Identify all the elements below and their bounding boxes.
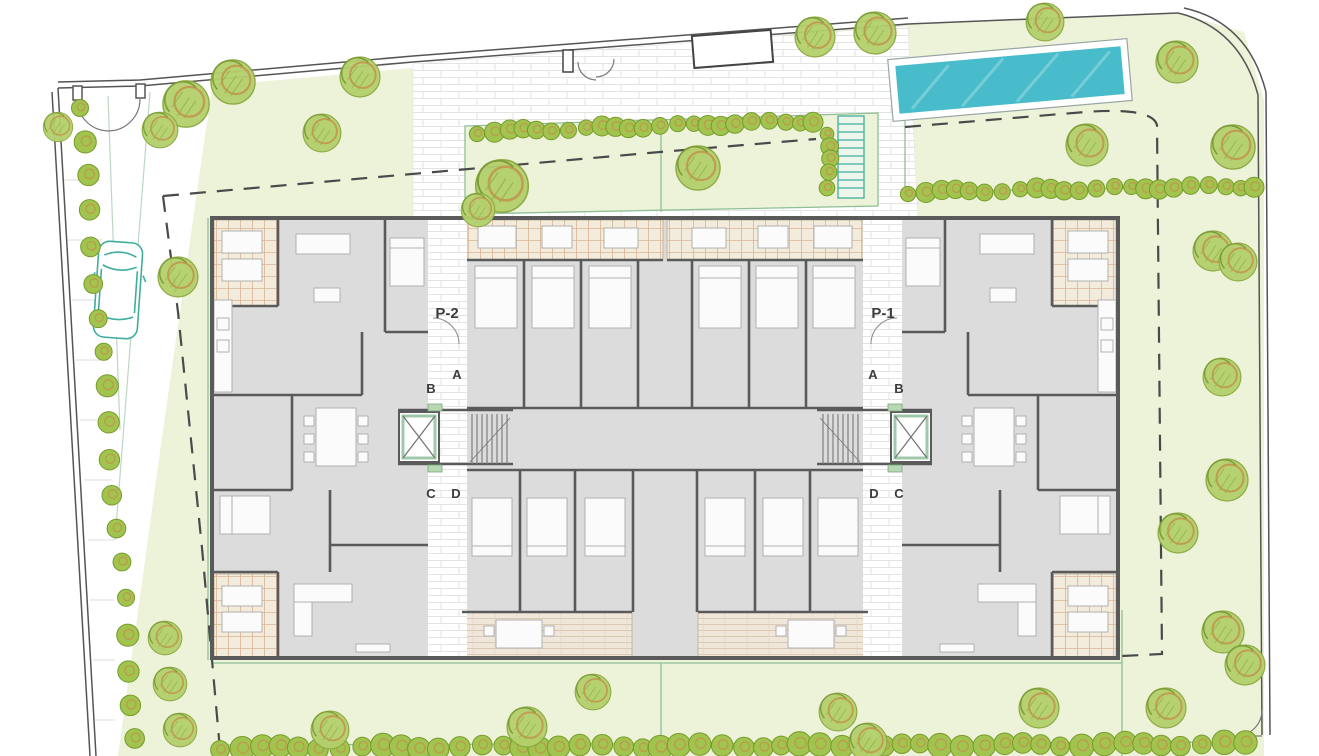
tree [575, 674, 611, 710]
hedge-bush [808, 733, 831, 756]
hedge-bush [95, 343, 112, 360]
hedge-bush [614, 737, 634, 756]
unit-letter-d-left: D [451, 486, 460, 501]
hedge-bush [1234, 731, 1257, 754]
site-plan-canvas: P-2 P-1 A B C D A B D C [0, 0, 1319, 756]
hedge-bush [118, 589, 135, 606]
hedge-bush [79, 200, 99, 220]
hedge-bush [78, 164, 99, 185]
hedge-bush [72, 100, 89, 117]
tree [1026, 3, 1064, 41]
tree [1225, 645, 1265, 685]
hedge-bush [711, 735, 733, 756]
hedge-bush [1164, 179, 1182, 197]
hedge-bush [1192, 735, 1211, 754]
hedge-bush [734, 737, 755, 756]
hedge-bush [1070, 734, 1094, 756]
hedge-bush [1212, 730, 1236, 754]
hedge-bush [113, 553, 131, 571]
hedge-bush [1088, 180, 1105, 197]
hedge-bush [569, 734, 591, 756]
tree [1211, 125, 1255, 169]
tree [461, 193, 495, 227]
hedge-bush [469, 126, 484, 141]
tree [1219, 243, 1257, 281]
hedge-bush [743, 113, 761, 131]
unit-letter-a-right: A [868, 367, 878, 382]
tree [849, 723, 887, 756]
hedge-bush [102, 485, 122, 505]
tree [676, 146, 720, 190]
hedge-bush [450, 737, 471, 756]
unit-letter-b-right: B [894, 381, 903, 396]
hedge-bush [1107, 179, 1123, 195]
hedge-bush [950, 735, 973, 756]
hedge-bush [81, 237, 101, 257]
apartment-building [212, 218, 1118, 660]
site-plan: P-2 P-1 A B C D A B D C [0, 0, 1319, 756]
hedge-bush [1151, 735, 1172, 756]
hedge-bush [1051, 737, 1070, 756]
hedge-bush [911, 734, 930, 753]
hedge-bush [1070, 182, 1088, 200]
hedge-bush [1182, 177, 1200, 195]
tree [153, 667, 187, 701]
tree [795, 17, 835, 57]
unit-letter-b-left: B [426, 381, 435, 396]
hedge-bush [89, 310, 107, 328]
hedge-bush [1012, 733, 1033, 754]
tree [1019, 688, 1059, 728]
portal-label-p1: P-1 [871, 305, 894, 322]
hedge-bush [98, 412, 119, 433]
hedge-bush [1171, 736, 1191, 756]
hedge-bush [1244, 177, 1264, 197]
hedge-bush [634, 119, 652, 137]
tree [819, 693, 857, 731]
hedge-bush [1031, 735, 1051, 755]
tree [142, 112, 178, 148]
hedge-bush [819, 180, 835, 196]
tree [148, 621, 182, 655]
hedge-bush [689, 733, 711, 755]
hedge-bush [670, 116, 686, 132]
hedge-bush [778, 114, 794, 130]
elevator [399, 412, 439, 462]
tree [163, 713, 197, 747]
unit-letter-a-left: A [452, 367, 462, 382]
tree [1158, 513, 1198, 553]
hedge-bush [754, 738, 774, 756]
hedge-bush [821, 164, 837, 180]
hedge-bush [560, 122, 576, 138]
tree [854, 12, 896, 54]
hedge-bush [803, 112, 823, 132]
hedge-bush [99, 449, 119, 469]
hedge-bush [652, 117, 669, 134]
hedge-bush [726, 115, 744, 133]
unit-letter-c-right: C [894, 486, 904, 501]
hedge-bush [973, 735, 995, 756]
tree [1203, 358, 1241, 396]
hedge-bush [408, 737, 430, 756]
garden-stair [838, 116, 864, 198]
hedge-bush [960, 182, 978, 200]
hedge-bush [287, 737, 309, 756]
hedge-bush [892, 734, 912, 754]
tree [340, 57, 380, 97]
unit-letter-c-left: C [426, 486, 436, 501]
hedge-bush [900, 186, 915, 201]
unit-letter-d-right: D [869, 486, 878, 501]
hedge-bush [84, 275, 103, 294]
hedge-bush [211, 741, 230, 756]
hedge-bush [667, 734, 690, 756]
hedge-bush [928, 733, 952, 756]
hedge-bush [592, 734, 613, 755]
hedge-bush [353, 737, 372, 756]
hedge-bush [1200, 177, 1217, 194]
portal-label-p2: P-2 [435, 305, 458, 322]
hedge-bush [125, 729, 145, 749]
hedge-bush [976, 184, 993, 201]
tree [43, 112, 72, 141]
hedge-bush [107, 519, 126, 538]
tree [507, 707, 547, 747]
hedge-bush [118, 661, 139, 682]
tree [211, 60, 255, 104]
tree [303, 114, 341, 152]
hedge-bush [994, 184, 1010, 200]
tree [1066, 124, 1108, 166]
hedge-bush [472, 735, 492, 755]
tree [1156, 41, 1198, 83]
hedge-bush [117, 624, 139, 646]
hedge-bush [74, 131, 96, 153]
hedge-bush [543, 123, 560, 140]
tree [158, 257, 198, 297]
hedge-bush [578, 120, 593, 135]
hedge-bush [96, 375, 118, 397]
hedge-bush [120, 695, 140, 715]
tree [1206, 459, 1248, 501]
tree [1146, 688, 1186, 728]
hedge-bush [547, 736, 569, 756]
hedge-bush [1013, 182, 1028, 197]
hedge-bush [761, 112, 778, 129]
hedge-bush [1218, 179, 1234, 195]
entry-structure [692, 30, 773, 68]
hedge-bush [427, 738, 449, 756]
hedge-bush [1093, 732, 1116, 755]
tree [311, 711, 349, 749]
